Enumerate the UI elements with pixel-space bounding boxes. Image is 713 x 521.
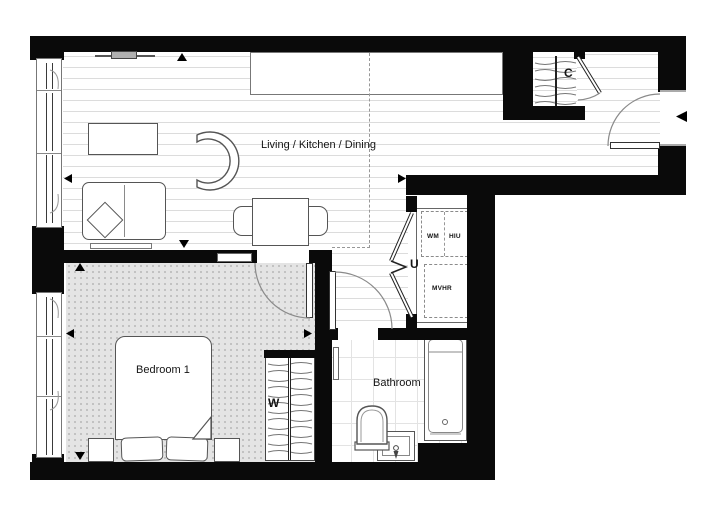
sofa-seat-divider bbox=[124, 185, 125, 237]
hiu-label: HIU bbox=[449, 234, 461, 241]
hall-cupboard-label: C bbox=[564, 67, 573, 79]
wardrobe-top-wall bbox=[264, 350, 315, 358]
wall-segment bbox=[406, 314, 417, 330]
bed-pillow bbox=[166, 436, 209, 461]
wall-segment bbox=[418, 443, 495, 462]
nightstand-right bbox=[214, 438, 240, 462]
wall-segment bbox=[574, 50, 585, 59]
entrance-arrow-icon bbox=[676, 111, 687, 122]
washbasin bbox=[377, 431, 415, 461]
window-glazing bbox=[46, 297, 53, 335]
wall-panel-inset bbox=[217, 253, 252, 262]
bathtub bbox=[424, 334, 467, 441]
wall-segment bbox=[503, 50, 533, 120]
wall-segment bbox=[467, 195, 495, 462]
towel-rail bbox=[333, 347, 339, 380]
bedroom-label: Bedroom 1 bbox=[136, 365, 190, 376]
wall-segment bbox=[406, 196, 417, 212]
utility-cupboard-label: U bbox=[410, 258, 419, 270]
wall-segment bbox=[32, 226, 64, 294]
sofa-front-shelf bbox=[90, 243, 152, 249]
window-glazing bbox=[46, 339, 53, 395]
nightstand-left bbox=[88, 438, 114, 462]
living-room-window bbox=[36, 58, 62, 228]
bedroom-window bbox=[36, 292, 62, 458]
window-transom bbox=[37, 90, 61, 91]
door-jamb bbox=[660, 90, 686, 92]
entrance-door-leaf bbox=[610, 142, 660, 149]
utility-appliance-divider bbox=[444, 212, 445, 256]
dining-chair-left bbox=[233, 206, 253, 236]
window-transom bbox=[37, 336, 61, 337]
hall-cupboard-floor bbox=[533, 53, 577, 108]
kitchen-counter bbox=[250, 52, 503, 95]
inner-hall-floor bbox=[332, 250, 408, 328]
bathtub-inner bbox=[428, 339, 463, 433]
wall-segment bbox=[30, 36, 686, 52]
wall-vent bbox=[111, 51, 137, 59]
wardrobe-label: W bbox=[268, 397, 279, 409]
wall-segment bbox=[533, 106, 585, 120]
kitchen-zone-dashed-line bbox=[332, 247, 370, 248]
door-jamb bbox=[660, 144, 686, 146]
coffee-table bbox=[88, 123, 158, 155]
washbasin-inner bbox=[382, 436, 410, 456]
bathroom-door-leaf bbox=[329, 271, 336, 330]
bedroom-door-leaf bbox=[306, 263, 313, 318]
wall-segment bbox=[30, 36, 64, 60]
bathroom-label: Bathroom bbox=[373, 378, 421, 389]
wall-segment bbox=[30, 462, 495, 480]
washing-machine-label: WM bbox=[427, 234, 439, 241]
window-glazing bbox=[46, 399, 53, 455]
window-glazing bbox=[46, 63, 53, 89]
bed bbox=[115, 336, 212, 440]
dining-table bbox=[252, 198, 309, 246]
window-glazing bbox=[46, 155, 53, 223]
window-transom bbox=[37, 153, 61, 154]
window-glazing bbox=[46, 93, 53, 151]
bed-pillow bbox=[121, 436, 164, 461]
living-room-label: Living / Kitchen / Dining bbox=[261, 140, 376, 151]
mvhr-label: MVHR bbox=[432, 286, 452, 293]
floor-plan: Living / Kitchen / Dining Bedroom 1 Bath… bbox=[0, 0, 713, 521]
wall-segment bbox=[658, 36, 686, 92]
dining-chair-right bbox=[308, 206, 328, 236]
wall-segment bbox=[378, 328, 470, 340]
window-transom bbox=[37, 396, 61, 397]
wall-segment bbox=[406, 175, 686, 195]
